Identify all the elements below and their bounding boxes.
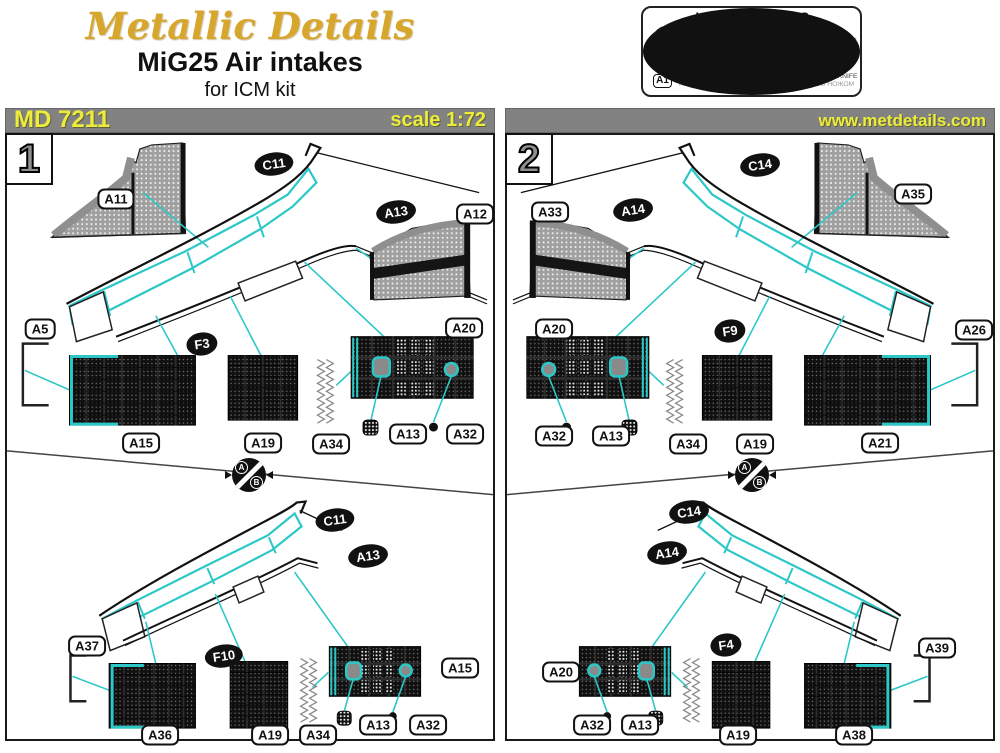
used-symbols-grid: 1 STAGES OF ASSEMBLY ЭТАПЫ СБОРКИ AB ALT… <box>649 26 856 92</box>
part-label: A34 <box>669 434 707 455</box>
part-label: A34 <box>299 725 337 746</box>
part-label: A34 <box>312 434 350 455</box>
part-label: A35 <box>894 184 932 205</box>
part-label: A19 <box>736 434 774 455</box>
website-url: www.metdetails.com <box>818 111 986 131</box>
website-bar: www.metdetails.com <box>505 108 995 133</box>
part-label: A32 <box>446 424 484 445</box>
part-label: A37 <box>68 636 106 657</box>
assembly-stage-1-panel: 1 AB A11 C11 A13 A12 A5 F3 A20 A15 <box>5 133 495 741</box>
brand-logo: Metallic Details <box>0 4 500 48</box>
part-label: A33 <box>531 202 569 223</box>
part-label: A38 <box>835 725 873 746</box>
product-code: MD 7211 <box>14 106 110 134</box>
part-label: A13 <box>592 426 630 447</box>
stage-number: 1 <box>5 133 53 185</box>
scale-label: scale 1:72 <box>390 109 486 132</box>
page-subtitle: for ICM kit <box>0 79 500 102</box>
alternatives-icon: AB <box>759 26 786 48</box>
part-label: A32 <box>573 715 611 736</box>
part-label: A13 <box>359 715 397 736</box>
part-label: A19 <box>251 725 289 746</box>
part-label: A19 <box>244 433 282 454</box>
part-label: A20 <box>542 662 580 683</box>
part-label: A36 <box>141 725 179 746</box>
part-label: A26 <box>955 320 993 341</box>
used-symbols-box: USED SYMBOLS 1 STAGES OF ASSEMBLY ЭТАПЫ … <box>641 6 862 97</box>
product-bar: MD 7211 scale 1:72 <box>5 108 495 133</box>
part-label: A20 <box>445 318 483 339</box>
part-label: A32 <box>409 715 447 736</box>
instruction-sheet: Metallic Details MiG25 Air intakes for I… <box>0 0 1000 753</box>
part-label: A39 <box>918 638 956 659</box>
page-title: MiG25 Air intakes <box>0 47 500 78</box>
assembly-stage-2-panel: 2 AB A33 A14 C14 A35 A20 F9 A26 A32 <box>505 133 995 741</box>
part-label: A13 <box>621 715 659 736</box>
part-label: A20 <box>535 319 573 340</box>
part-label: A13 <box>389 424 427 445</box>
part-label: A32 <box>535 426 573 447</box>
part-label: A19 <box>719 725 757 746</box>
part-label: A21 <box>861 433 899 454</box>
part-label: A11 <box>97 189 134 210</box>
alternatives-marker: AB <box>735 458 769 492</box>
part-label: A5 <box>25 319 56 340</box>
alternatives-marker: AB <box>232 458 266 492</box>
stage-number: 2 <box>505 133 553 185</box>
legend-alternatives: AB ALTERNATIVES ВАРИАНТЫ СБОРКИ <box>759 26 859 48</box>
part-label: A12 <box>456 204 494 225</box>
part-label: A15 <box>122 433 160 454</box>
part-label: A15 <box>441 658 479 679</box>
